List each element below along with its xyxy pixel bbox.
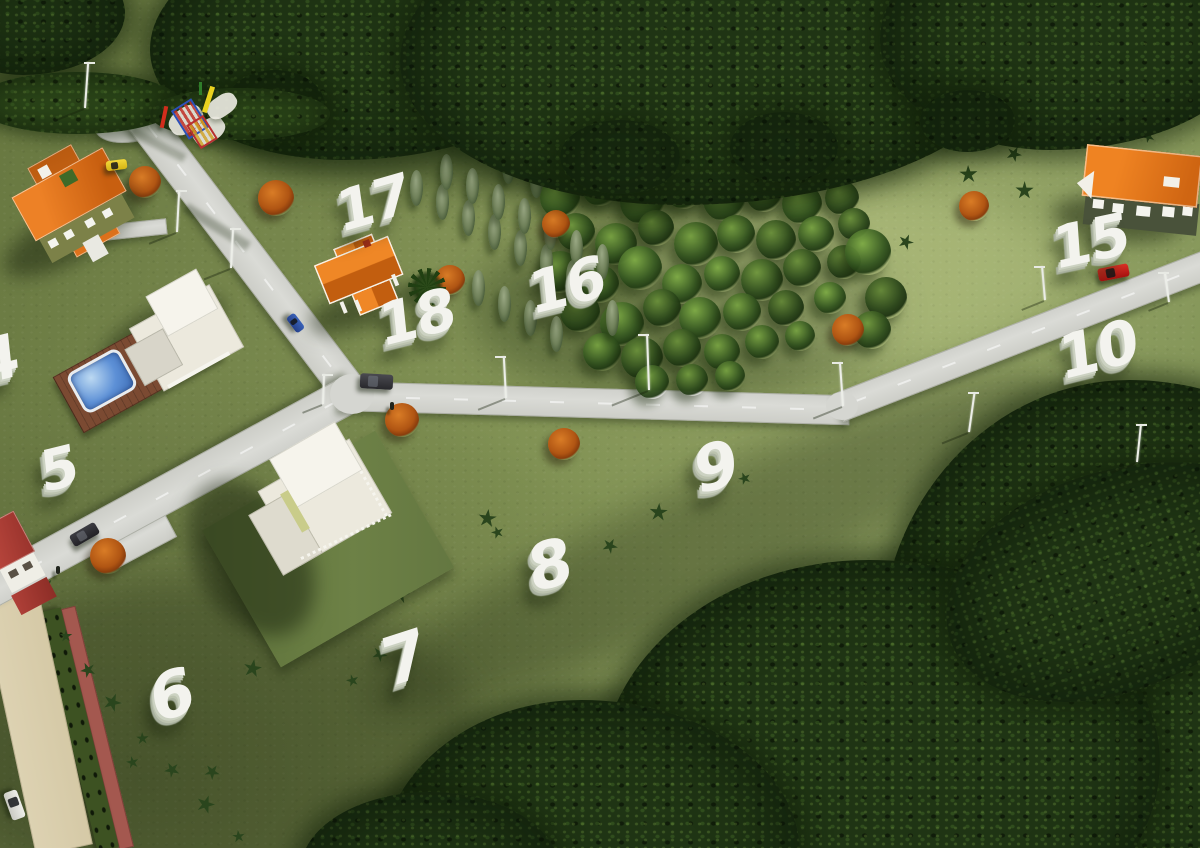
- lot-label-5[interactable]: 5: [38, 437, 80, 502]
- grove-tree: [583, 333, 621, 371]
- road-centerline: [358, 396, 829, 411]
- street-lamp-arm: [230, 228, 241, 230]
- orange-tree: [832, 314, 864, 346]
- window: [1182, 206, 1193, 216]
- pine-tree: [498, 286, 511, 322]
- pine-tree: [472, 270, 485, 306]
- gable-end: [1075, 169, 1094, 199]
- street-lamp-arm: [968, 392, 979, 394]
- street-lamp-arm: [832, 362, 843, 364]
- green-pole: [199, 82, 202, 95]
- van-roof: [368, 376, 378, 387]
- orange-tree: [90, 538, 126, 574]
- lot-label-15[interactable]: 15: [1051, 204, 1130, 278]
- grove-tree: [814, 282, 846, 314]
- street-lamp-arm: [1136, 424, 1147, 426]
- pine-tree: [492, 184, 505, 220]
- grove-tree: [745, 325, 779, 359]
- grove-tree: [783, 249, 821, 287]
- pine-tree: [462, 200, 475, 236]
- pine-tree: [440, 154, 453, 190]
- lot-label-9[interactable]: 9: [692, 431, 738, 504]
- street-lamp-arm: [495, 356, 506, 358]
- grove-tree: [845, 229, 891, 275]
- grove-tree: [785, 321, 815, 351]
- masterplan-scene: 4567891015161718: [0, 0, 1200, 848]
- pine-tree: [410, 170, 423, 206]
- grove-tree: [704, 256, 740, 292]
- grove-tree: [663, 329, 701, 367]
- pine-tree: [466, 168, 479, 204]
- lot-label-6[interactable]: 6: [146, 658, 196, 734]
- lot-label-16[interactable]: 16: [526, 247, 607, 324]
- pedestrian: [390, 402, 394, 410]
- grove-tree: [638, 210, 674, 246]
- lot-label-10[interactable]: 10: [1056, 310, 1139, 389]
- window: [1162, 206, 1175, 217]
- tree-clump: [920, 90, 1015, 152]
- orange-tree: [258, 180, 294, 216]
- car-windshield: [111, 161, 118, 169]
- pedestrian: [56, 566, 60, 574]
- orange-tree: [542, 210, 570, 238]
- dormer: [1163, 176, 1180, 188]
- orange-tree: [548, 428, 580, 460]
- grove-tree: [676, 364, 708, 396]
- car-windshield: [76, 530, 88, 542]
- tree-clump: [730, 112, 838, 182]
- pine-tree: [518, 198, 531, 234]
- grove-tree: [643, 289, 681, 327]
- street-lamp-arm: [1034, 266, 1045, 268]
- car-windshield: [7, 797, 19, 809]
- grove-tree: [618, 246, 662, 290]
- window: [1136, 206, 1151, 217]
- dark-van: [360, 373, 394, 390]
- car-windshield: [290, 317, 299, 326]
- street-lamp-arm: [84, 62, 95, 64]
- lot-label-8[interactable]: 8: [525, 529, 573, 604]
- grove-tree: [717, 215, 755, 253]
- street-lamp-arm: [638, 334, 649, 336]
- street-lamp-arm: [176, 190, 187, 192]
- grove-tree: [715, 361, 745, 391]
- grove-tree: [798, 216, 834, 252]
- orange-tree: [959, 191, 989, 221]
- street-lamp-arm: [322, 374, 333, 376]
- street-lamp-arm: [1158, 272, 1169, 274]
- porch-post: [340, 301, 348, 314]
- lot-label-18[interactable]: 18: [376, 279, 457, 356]
- tree-clump: [560, 120, 680, 194]
- pine-tree: [606, 300, 619, 336]
